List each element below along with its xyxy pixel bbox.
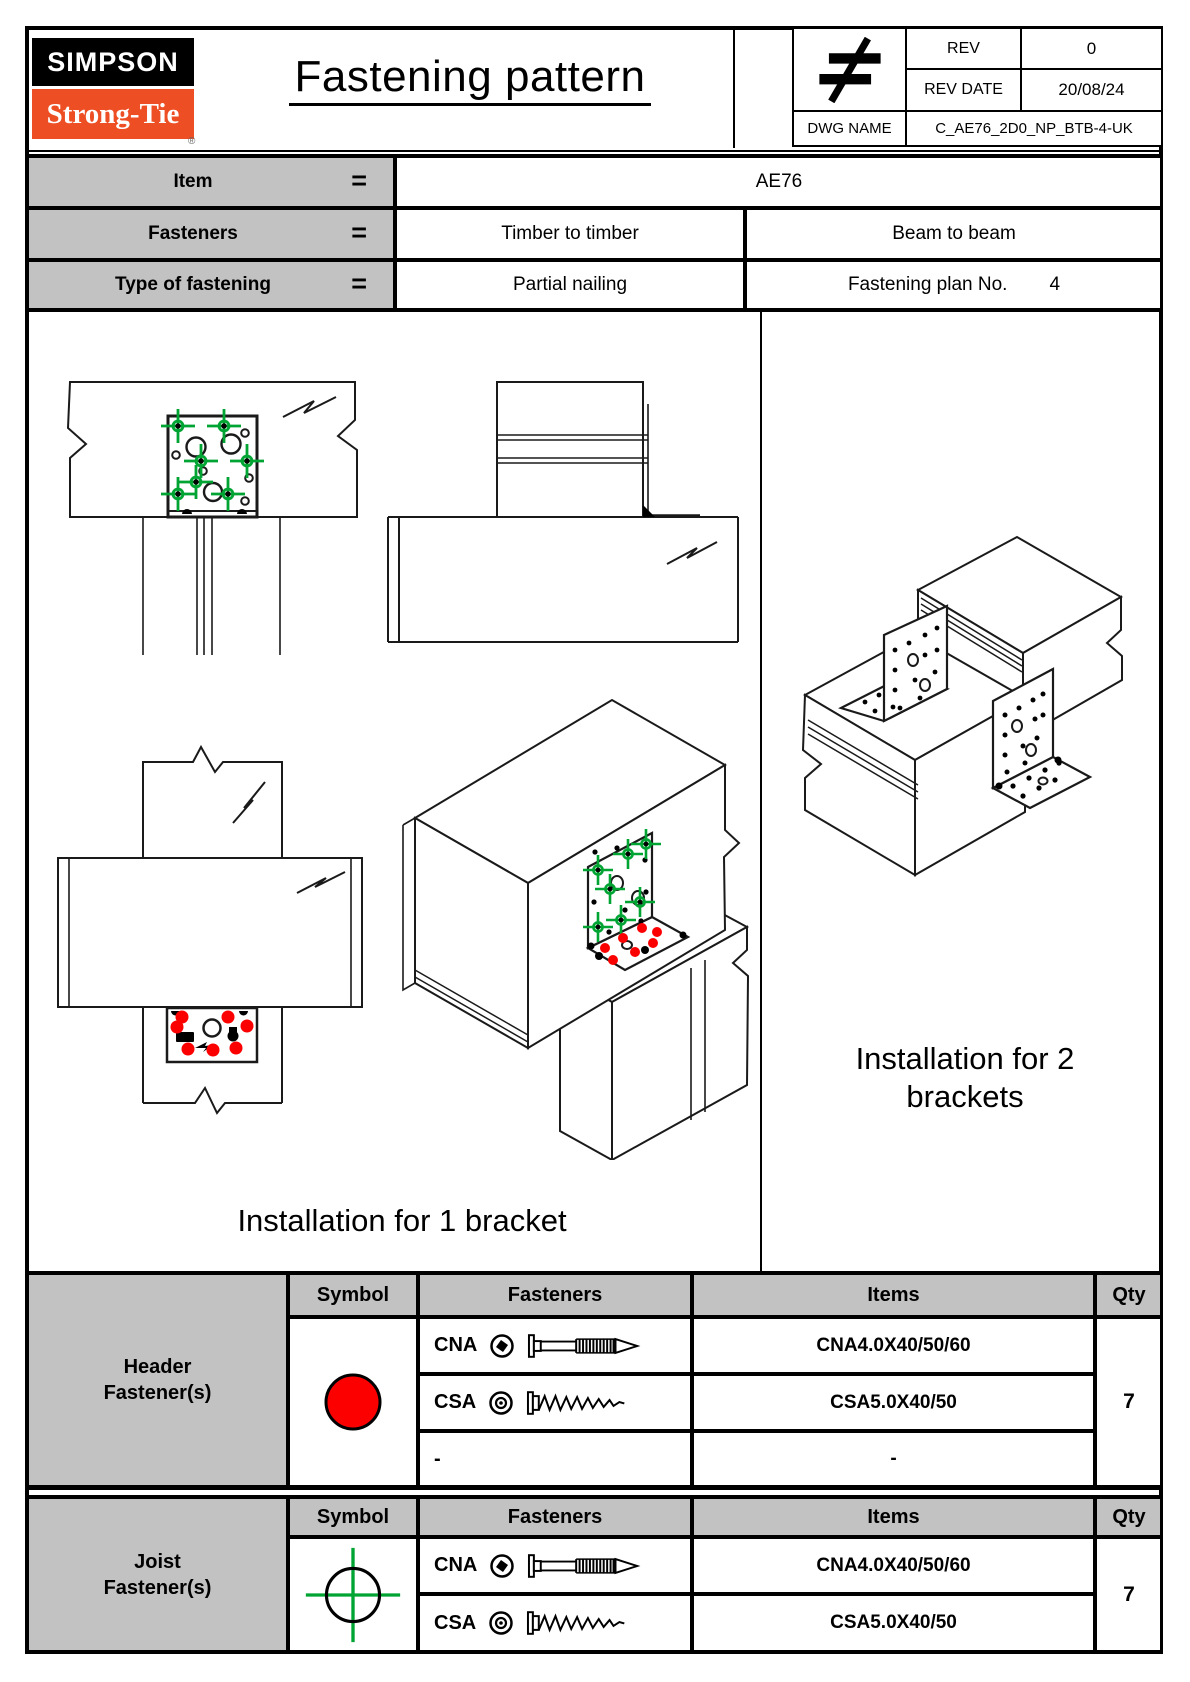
csa-screw-icon [526,1390,642,1416]
front-view-drawing [55,370,365,660]
rev-date-value-cell: 20/08/24 [1020,68,1163,112]
rev-label-cell: REV [905,27,1022,70]
logo-simpson-text: SIMPSON [47,47,179,78]
col-header-qty: Qty [1095,1497,1163,1537]
item-row-cna: CNA4.0X40/50/60 [692,1537,1095,1594]
col-header-fasteners: Fasteners [418,1497,692,1537]
dwg-name-label-cell: DWG NAME [792,110,907,147]
info-value-plan: Fastening plan No. 4 [745,260,1163,310]
fastener-row-csa: CSA [418,1594,692,1652]
drawing-area-divider [760,310,762,1273]
title-block-divider [733,30,735,148]
fastener-row-empty: - [418,1431,692,1487]
fastener-row-csa: CSA [418,1374,692,1431]
fastening-pattern-sheet: SIMPSON Strong-Tie ® Fastening pattern R… [0,0,1190,1682]
header-symbol-cell [288,1317,418,1487]
col-header-items: Items [692,1273,1095,1317]
page-title: Fastening pattern [235,52,705,102]
fastener-row-cna: CNA [418,1537,692,1594]
header-qty-cell: 7 [1095,1317,1163,1487]
bottom-view-drawing [45,690,375,1130]
equals-sign: = [351,165,367,196]
caption-two-brackets: Installation for 2 brackets [795,1040,1135,1116]
joist-qty-cell: 7 [1095,1537,1163,1652]
info-label-type: Type of fastening = [27,260,395,310]
info-label-fasteners: Fasteners = [27,208,395,260]
plan-number: 4 [1049,274,1060,296]
csa-head-icon [488,1390,514,1416]
equals-sign: = [351,268,367,299]
iso-one-bracket-drawing [395,680,750,1160]
dwg-name-value-cell: C_AE76_2D0_NP_BTB-4-UK [905,110,1163,147]
cna-nail-icon [527,1553,645,1579]
joist-fasteners-group-cell: Joist Fastener(s) [27,1497,288,1652]
projection-symbol-cell [792,27,907,112]
joist-fastener-markers [161,409,264,511]
col-header-symbol: Symbol [288,1497,418,1537]
csa-screw-icon [526,1610,642,1636]
not-equal-projection-icon [805,37,895,103]
cna-head-icon [489,1553,515,1579]
info-value-item: AE76 [395,156,1163,208]
green-crosshair-symbol [297,1540,409,1650]
col-header-fasteners: Fasteners [418,1273,692,1317]
item-row-cna: CNA4.0X40/50/60 [692,1317,1095,1374]
col-header-symbol: Symbol [288,1273,418,1317]
info-label-item: Item = [27,156,395,208]
equals-sign: = [351,217,367,248]
simpson-logo: SIMPSON [32,38,194,86]
rev-value-cell: 0 [1020,27,1163,70]
registered-mark: ® [188,136,195,147]
iso-two-brackets-drawing [775,480,1160,950]
logo-strongtie-text: Strong-Tie [47,98,180,131]
info-value-timber: Timber to timber [395,208,745,260]
caption-one-bracket: Installation for 1 bracket [217,1202,587,1240]
band-separator [25,150,1163,152]
col-header-items: Items [692,1497,1095,1537]
item-row-csa: CSA5.0X40/50 [692,1594,1095,1652]
info-value-nailing: Partial nailing [395,260,745,310]
side-view-drawing [385,370,745,660]
item-row-csa: CSA5.0X40/50 [692,1374,1095,1431]
rev-date-label-cell: REV DATE [905,68,1022,112]
cna-nail-icon [527,1333,645,1359]
red-dot-symbol [321,1370,385,1434]
fastener-row-cna: CNA [418,1317,692,1374]
joist-symbol-cell [288,1537,418,1652]
header-fasteners-group-cell: Header Fastener(s) [27,1273,288,1487]
csa-head-icon [488,1610,514,1636]
col-header-qty: Qty [1095,1273,1163,1317]
strongtie-logo: Strong-Tie [32,89,194,139]
info-value-beam: Beam to beam [745,208,1163,260]
cna-head-icon [489,1333,515,1359]
item-row-empty: - [692,1431,1095,1487]
